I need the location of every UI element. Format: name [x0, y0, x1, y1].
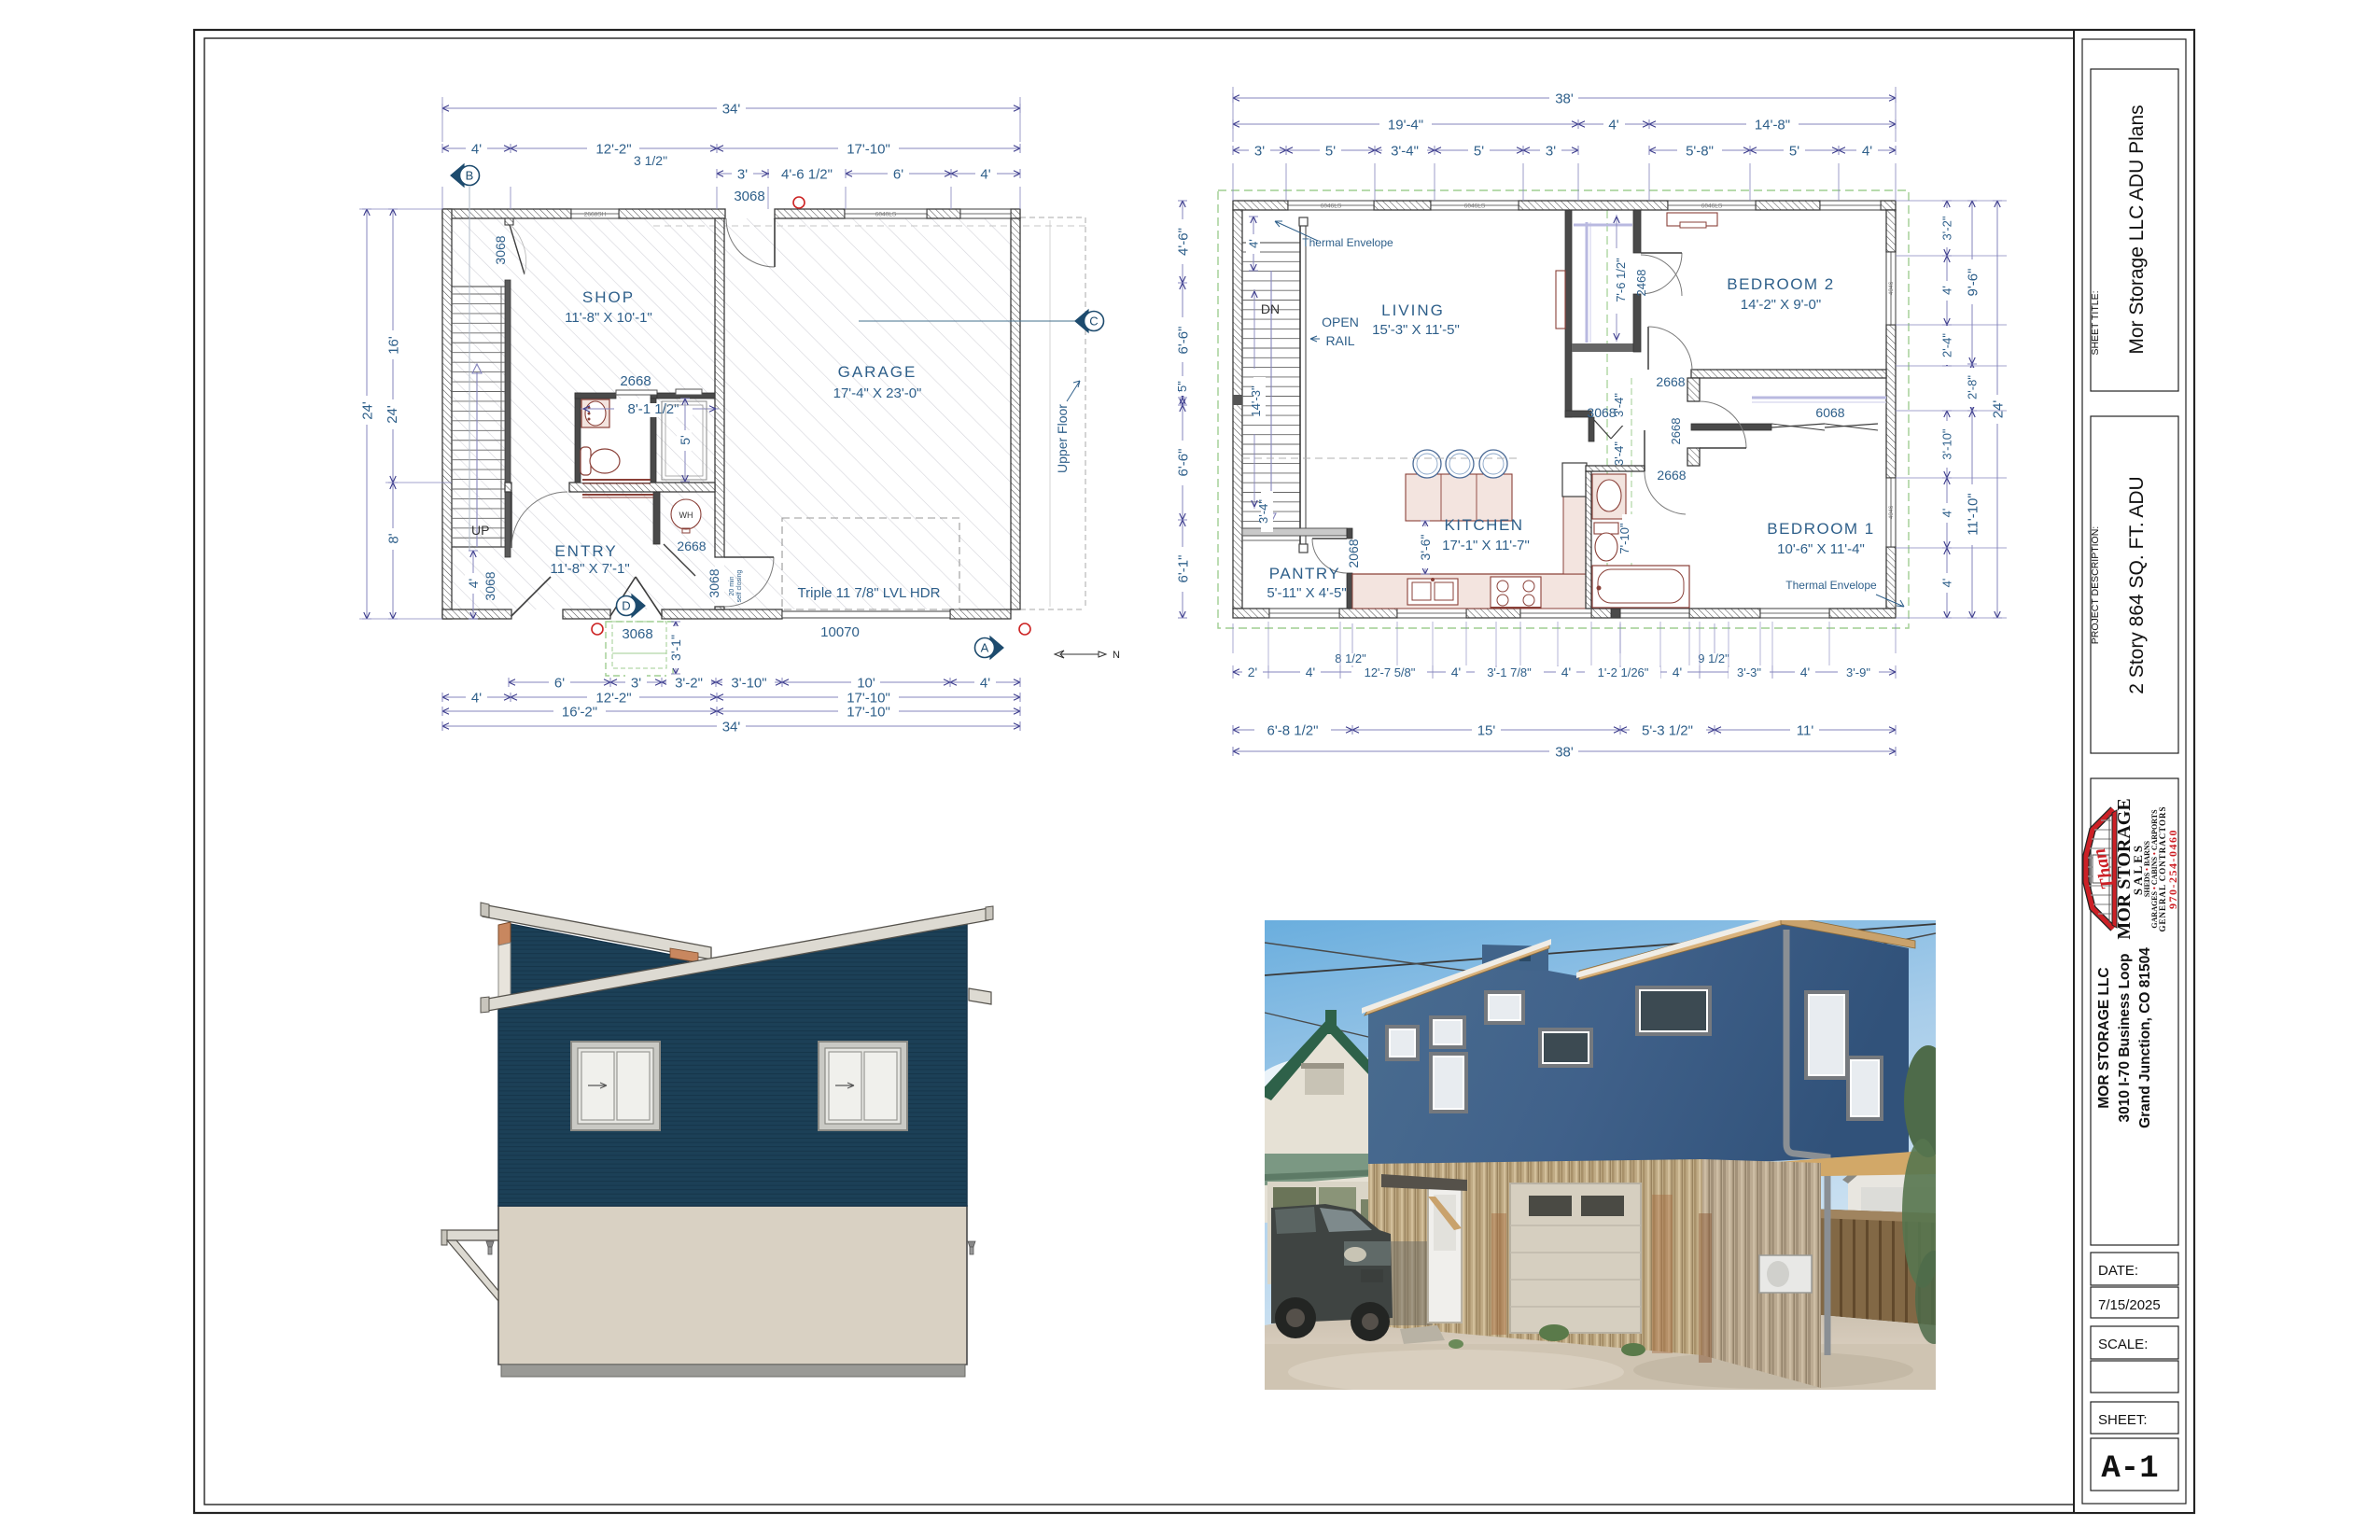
svg-text:2': 2'	[1248, 665, 1257, 679]
svg-text:11': 11'	[1797, 722, 1814, 738]
svg-text:15'-3" X 11'-5": 15'-3" X 11'-5"	[1372, 322, 1460, 338]
svg-text:4': 4'	[1800, 665, 1810, 679]
svg-text:8 1/2": 8 1/2"	[1335, 651, 1366, 665]
svg-text:10070: 10070	[820, 624, 860, 640]
svg-text:Thermal Envelope: Thermal Envelope	[1302, 236, 1393, 249]
svg-text:1'-2 1/26": 1'-2 1/26"	[1598, 665, 1649, 679]
svg-text:5': 5'	[1789, 143, 1799, 159]
svg-text:B: B	[466, 169, 474, 183]
svg-text:24': 24'	[359, 401, 375, 420]
svg-text:2668: 2668	[1669, 418, 1683, 445]
svg-text:3': 3'	[631, 675, 641, 691]
svg-text:38': 38'	[1555, 91, 1574, 106]
svg-text:6'-8 1/2": 6'-8 1/2"	[1267, 722, 1319, 738]
svg-text:20 min: 20 min	[729, 576, 735, 595]
svg-text:PANTRY: PANTRY	[1269, 565, 1340, 582]
svg-text:4': 4'	[471, 690, 482, 706]
svg-text:3': 3'	[737, 166, 748, 182]
svg-text:11'-8" X 7'-1": 11'-8" X 7'-1"	[550, 561, 629, 577]
svg-text:10': 10'	[857, 675, 875, 691]
svg-text:BEDROOM 2: BEDROOM 2	[1727, 275, 1835, 293]
svg-text:34': 34'	[722, 719, 741, 735]
svg-text:LIVING: LIVING	[1381, 301, 1445, 319]
svg-text:3068: 3068	[493, 235, 508, 264]
svg-text:BEDROOM 1: BEDROOM 1	[1767, 520, 1875, 538]
svg-text:ENTRY: ENTRY	[554, 542, 617, 560]
svg-text:5": 5"	[1175, 381, 1189, 392]
svg-text:Grand Junction, CO 81504: Grand Junction, CO 81504	[2137, 947, 2153, 1128]
svg-text:17'-10": 17'-10"	[847, 704, 890, 720]
svg-text:OPEN: OPEN	[1322, 315, 1359, 329]
svg-text:24': 24'	[385, 405, 400, 424]
svg-text:6'-6": 6'-6"	[1175, 449, 1191, 477]
svg-text:3'-2": 3'-2"	[675, 675, 703, 691]
svg-text:11'-8" X 10'-1": 11'-8" X 10'-1"	[565, 310, 652, 326]
svg-text:5': 5'	[678, 435, 693, 444]
svg-text:11'-10": 11'-10"	[1965, 493, 1981, 535]
svg-text:4046: 4046	[1888, 505, 1895, 519]
svg-text:RAIL: RAIL	[1325, 333, 1354, 348]
svg-text:PROJECT DESCRIPTION:: PROJECT DESCRIPTION:	[2090, 526, 2101, 644]
svg-text:5'-3 1/2": 5'-3 1/2"	[1642, 722, 1693, 738]
svg-text:6046LS: 6046LS	[1464, 203, 1486, 210]
svg-text:SCALE:: SCALE:	[2098, 1337, 2148, 1352]
svg-text:3': 3'	[1254, 143, 1265, 159]
svg-text:Triple 11 7/8" LVL HDR: Triple 11 7/8" LVL HDR	[798, 585, 941, 601]
svg-text:4': 4'	[471, 141, 482, 157]
svg-text:3'-4": 3'-4"	[1612, 393, 1626, 417]
svg-text:4'-6": 4'-6"	[1175, 228, 1191, 256]
svg-text:19'-4": 19'-4"	[1388, 117, 1423, 133]
svg-text:SHEET TITLE:: SHEET TITLE:	[2090, 290, 2101, 355]
svg-text:N: N	[1113, 650, 1120, 661]
svg-text:3'-4": 3'-4"	[1256, 499, 1270, 524]
svg-text:3068: 3068	[734, 189, 764, 204]
svg-text:4': 4'	[1940, 286, 1954, 295]
svg-text:2668: 2668	[1656, 374, 1685, 389]
svg-text:5': 5'	[1474, 143, 1484, 159]
svg-text:KITCHEN: KITCHEN	[1444, 516, 1523, 534]
svg-text:3068: 3068	[622, 626, 652, 642]
svg-text:4': 4'	[980, 675, 990, 691]
svg-text:6': 6'	[554, 675, 565, 691]
svg-text:10'-6" X 11'-4": 10'-6" X 11'-4"	[1777, 541, 1865, 557]
svg-text:6040LS: 6040LS	[875, 212, 897, 218]
svg-text:6'-6": 6'-6"	[1175, 327, 1191, 355]
svg-text:17'-10": 17'-10"	[847, 141, 890, 157]
svg-text:6'-1": 6'-1"	[1175, 555, 1191, 583]
svg-text:self closing: self closing	[736, 570, 743, 603]
svg-text:14'-2" X 9'-0": 14'-2" X 9'-0"	[1741, 297, 1821, 313]
svg-text:2668: 2668	[1657, 468, 1686, 483]
svg-text:4': 4'	[1940, 579, 1954, 588]
svg-text:4': 4'	[980, 166, 990, 182]
svg-text:7'-10": 7'-10"	[1617, 523, 1631, 554]
svg-text:4': 4'	[466, 579, 481, 588]
svg-text:2'-8": 2'-8"	[1966, 375, 1980, 399]
svg-text:3'-1 7/8": 3'-1 7/8"	[1487, 665, 1532, 679]
svg-text:12'-7 5/8": 12'-7 5/8"	[1365, 665, 1416, 679]
svg-text:D: D	[622, 599, 630, 613]
svg-text:Mor Storage LLC ADU Plans: Mor Storage LLC ADU Plans	[2126, 105, 2148, 354]
svg-text:2068: 2068	[1346, 539, 1361, 567]
svg-text:3'-1": 3'-1"	[668, 635, 683, 661]
svg-text:Upper Floor: Upper Floor	[1055, 404, 1070, 473]
svg-text:3'-10": 3'-10"	[731, 675, 766, 691]
svg-text:5': 5'	[1325, 143, 1336, 159]
svg-text:4': 4'	[1247, 239, 1261, 248]
svg-text:7/15/2025: 7/15/2025	[2098, 1297, 2161, 1313]
svg-text:3'-4": 3'-4"	[1612, 441, 1626, 466]
svg-text:6046LS: 6046LS	[1701, 203, 1723, 210]
svg-text:4': 4'	[1451, 665, 1461, 679]
svg-text:4'-6 1/2": 4'-6 1/2"	[781, 166, 833, 182]
svg-text:970-254-0460: 970-254-0460	[2166, 829, 2179, 909]
svg-text:C: C	[1089, 315, 1098, 329]
svg-text:14'-3": 14'-3"	[1249, 385, 1263, 417]
svg-text:9'-6": 9'-6"	[1965, 269, 1981, 297]
svg-text:5'-8": 5'-8"	[1686, 143, 1714, 159]
svg-text:WH: WH	[679, 511, 693, 520]
svg-text:3010 I-70 Business Loop: 3010 I-70 Business Loop	[2117, 954, 2133, 1123]
svg-text:4': 4'	[1673, 665, 1682, 679]
svg-text:2668SH: 2668SH	[584, 212, 607, 218]
svg-text:3'-9": 3'-9"	[1846, 665, 1870, 679]
svg-text:3068: 3068	[483, 571, 497, 600]
svg-text:DN: DN	[1261, 301, 1280, 316]
svg-text:16'-2": 16'-2"	[562, 704, 597, 720]
svg-text:12'-2": 12'-2"	[595, 141, 631, 157]
svg-text:3'-10": 3'-10"	[1940, 428, 1954, 460]
svg-text:4': 4'	[1862, 143, 1872, 159]
svg-text:3'-3": 3'-3"	[1737, 665, 1761, 679]
svg-text:6': 6'	[893, 166, 903, 182]
svg-text:2668: 2668	[620, 373, 651, 389]
svg-text:A-1: A-1	[2101, 1451, 2158, 1487]
svg-text:4': 4'	[1608, 117, 1618, 133]
svg-text:4': 4'	[1561, 665, 1571, 679]
svg-text:24': 24'	[1990, 400, 2006, 419]
svg-text:38': 38'	[1555, 744, 1574, 760]
svg-text:4': 4'	[1940, 509, 1954, 518]
svg-text:2668: 2668	[677, 539, 706, 553]
svg-text:15': 15'	[1477, 722, 1496, 738]
svg-text:5'-11" X 4'-5": 5'-11" X 4'-5"	[1267, 585, 1346, 601]
svg-text:Thermal Envelope: Thermal Envelope	[1785, 579, 1877, 592]
svg-text:3'-6": 3'-6"	[1418, 535, 1433, 561]
svg-text:3': 3'	[1546, 143, 1556, 159]
svg-text:4': 4'	[1306, 665, 1315, 679]
svg-text:3 1/2": 3 1/2"	[634, 153, 667, 168]
svg-text:2 Story 864 SQ. FT. ADU: 2 Story 864 SQ. FT. ADU	[2126, 476, 2148, 693]
svg-text:MOR STORAGE LLC: MOR STORAGE LLC	[2096, 967, 2112, 1108]
svg-text:6046LS: 6046LS	[1321, 203, 1342, 210]
svg-text:14'-8": 14'-8"	[1755, 117, 1790, 133]
svg-text:34': 34'	[722, 101, 741, 117]
svg-text:8'-1 1/2": 8'-1 1/2"	[628, 401, 679, 417]
svg-text:3'-2": 3'-2"	[1940, 216, 1954, 240]
svg-text:3068: 3068	[707, 568, 721, 597]
svg-text:8': 8'	[385, 533, 401, 543]
svg-text:DATE:: DATE:	[2098, 1263, 2138, 1279]
svg-text:GARAGE: GARAGE	[838, 363, 917, 381]
svg-text:2468: 2468	[1634, 270, 1648, 297]
svg-text:17'-4" X 23'-0": 17'-4" X 23'-0"	[833, 385, 922, 401]
svg-text:9 1/2": 9 1/2"	[1698, 651, 1729, 665]
svg-text:UP: UP	[471, 523, 489, 538]
svg-text:A: A	[981, 641, 989, 655]
svg-text:17'-1" X 11'-7": 17'-1" X 11'-7"	[1442, 538, 1530, 553]
svg-text:16': 16'	[385, 336, 401, 355]
svg-text:7'-6 1/2": 7'-6 1/2"	[1614, 258, 1628, 302]
svg-text:4046: 4046	[1888, 281, 1895, 295]
svg-text:SHOP: SHOP	[582, 288, 635, 306]
svg-text:2'-4": 2'-4"	[1940, 333, 1954, 357]
svg-text:6068: 6068	[1815, 405, 1844, 420]
svg-text:3'-4": 3'-4"	[1391, 143, 1419, 159]
svg-text:SHEET:: SHEET:	[2098, 1412, 2148, 1428]
